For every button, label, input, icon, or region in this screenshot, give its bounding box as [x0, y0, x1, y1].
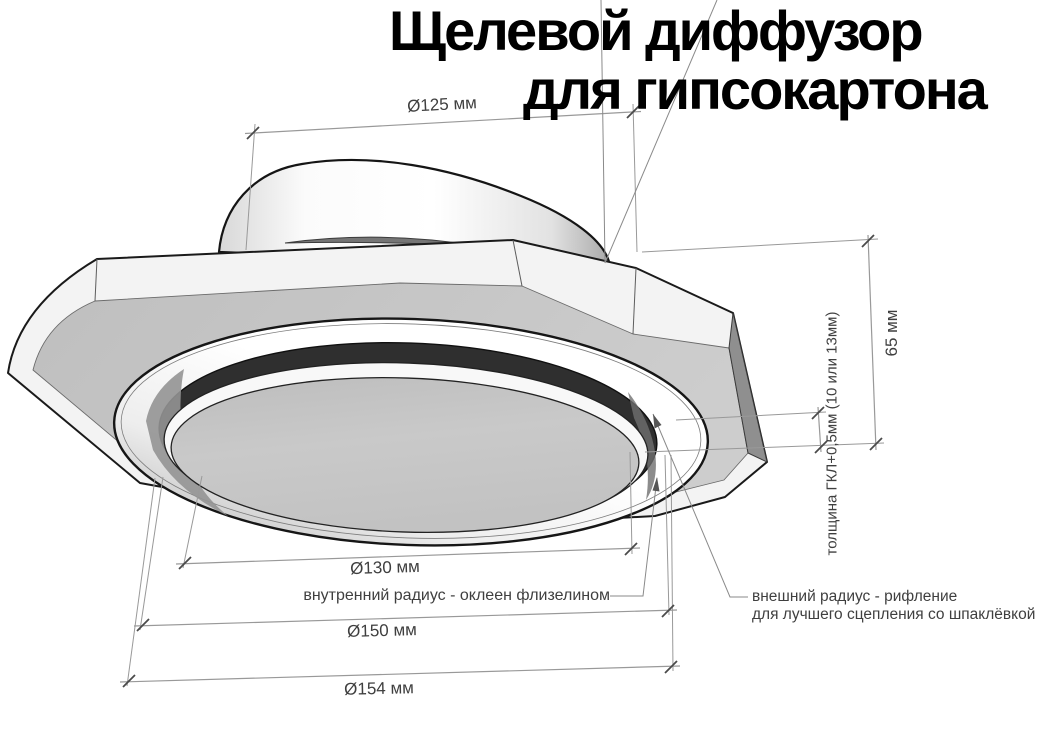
annotation-outer-radius-line2: для лучшего сцепления со шпаклёвкой [752, 606, 1035, 624]
ext-dia150-left [140, 477, 163, 630]
drawing-title-line2: для гипсокартона [523, 60, 986, 120]
dim-label-dia130: Ø130 мм [335, 556, 436, 579]
technical-drawing-canvas: Щелевой диффузор для гипсокартона Ø125 м… [0, 0, 1040, 729]
ext-65-top [642, 239, 878, 252]
dim-label-dia150: Ø150 мм [332, 620, 432, 643]
dim-label-gkl-thickness: толщина ГКЛ+0,5мм (10 или 13мм) [824, 284, 841, 584]
ext-dia154-left [127, 478, 155, 686]
annotation-outer-radius-line1: внешний радиус - рифление [752, 588, 957, 606]
ext-dia125-right [633, 104, 637, 252]
dim-label-dia154: Ø154 мм [329, 678, 429, 700]
annotation-inner-radius: внутренний радиус - оклеен флизелином [295, 587, 610, 605]
dim-label-height65: 65 мм [882, 293, 902, 373]
drawing-title-line1: Щелевой диффузор [389, 1, 922, 61]
dim-65 [868, 235, 876, 450]
